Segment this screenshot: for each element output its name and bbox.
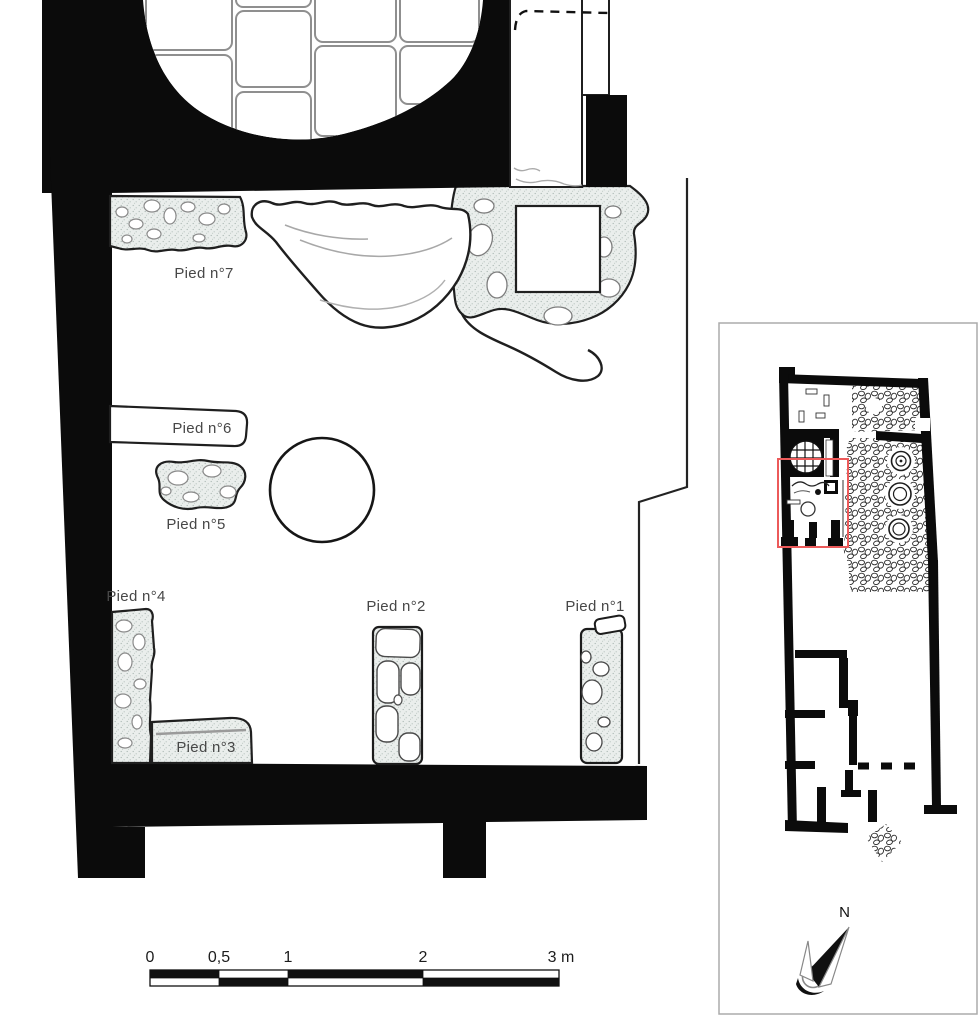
monument-square [516, 206, 600, 292]
pier-1-label: Pied n°1 [565, 598, 624, 615]
pier-5-label: Pied n°5 [166, 516, 225, 533]
pier-6: Pied n°6 [110, 406, 247, 446]
scale-bar: 0 0,5 1 2 3 m [146, 949, 575, 986]
pier-7: Pied n°7 [110, 196, 246, 282]
scale-tick-2: 2 [419, 949, 428, 966]
wall-block-right-of-strip [586, 95, 627, 187]
threshold-strips [510, 0, 627, 187]
scale-tick-3m: 3 m [548, 949, 575, 966]
wall-bottom-band [112, 763, 647, 878]
scale-tick-0: 0 [146, 949, 155, 966]
pier-3: Pied n°3 [152, 718, 252, 763]
pier-5: Pied n°5 [156, 460, 245, 533]
inset-map: N [719, 323, 977, 1014]
pier-4-label: Pied n°4 [106, 588, 165, 605]
pier-2: Pied n°2 [366, 598, 425, 764]
pier-1: Pied n°1 [565, 598, 626, 763]
plan-svg: Pied n°7 Pied n°6 Pied n°5 Pied n°4 [0, 0, 979, 1024]
scale-tick-1: 1 [284, 949, 293, 966]
column-bases [885, 447, 915, 543]
pier-2-label: Pied n°2 [366, 598, 425, 615]
main-plan: Pied n°7 Pied n°6 Pied n°5 Pied n°4 [42, 0, 687, 878]
pier-6-label: Pied n°6 [172, 420, 231, 437]
scale-tick-05: 0,5 [208, 949, 230, 966]
north-label: N [839, 904, 851, 921]
pier-7-label: Pied n°7 [174, 265, 233, 282]
pier-3-label: Pied n°3 [176, 739, 235, 756]
round-base-circle [270, 438, 374, 542]
figure-canvas: Pied n°7 Pied n°6 Pied n°5 Pied n°4 [0, 0, 979, 1024]
inset-door-gap [915, 418, 930, 431]
excavation-limit-line [639, 178, 687, 764]
